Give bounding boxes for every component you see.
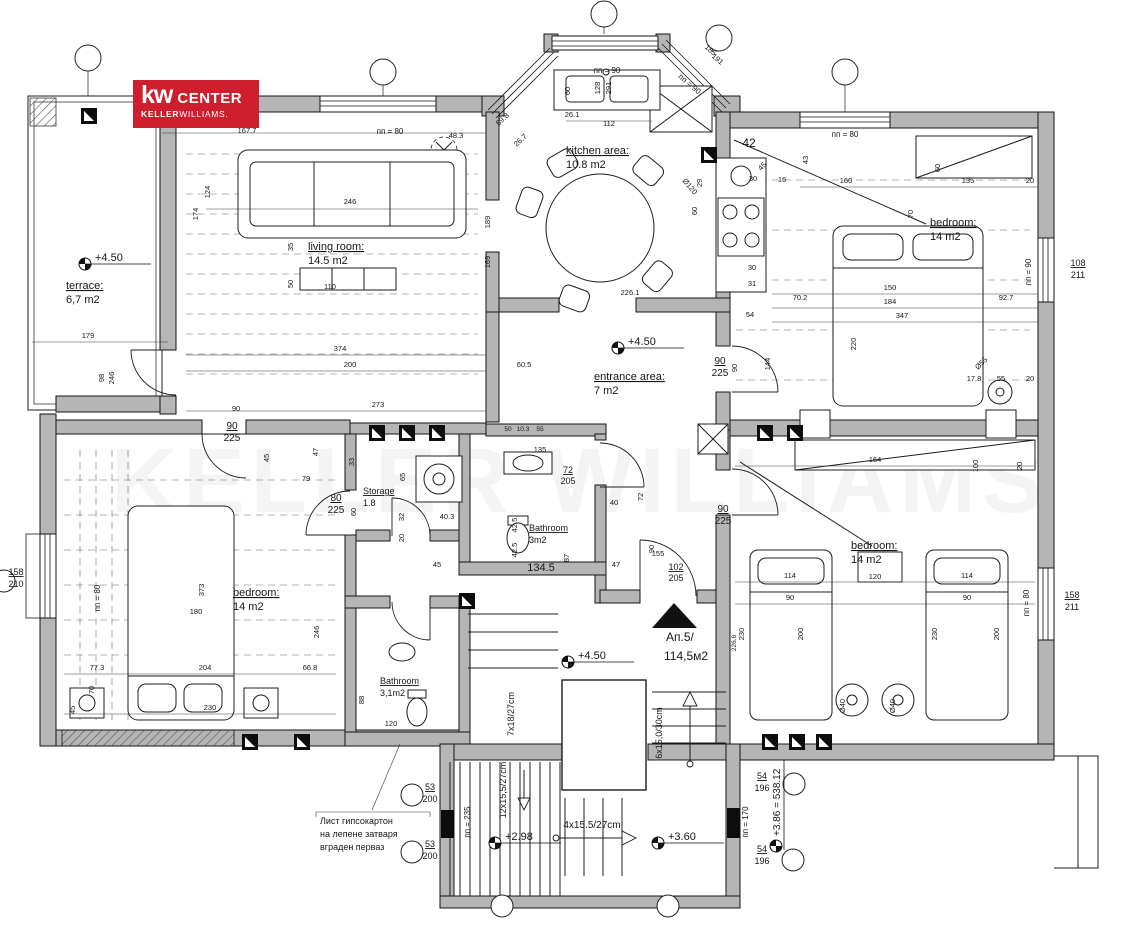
grid-bubble (75, 45, 101, 96)
column-marker (242, 734, 258, 750)
kw-logo-center: CENTER (177, 91, 242, 106)
plan-label: 3,1m2 (380, 688, 405, 698)
plan-label: 7 m2 (594, 385, 618, 397)
plan-label: 90 (730, 364, 739, 372)
plan-label: 114,5м2 (664, 649, 708, 663)
plan-label: 374 (334, 344, 347, 353)
plan-label: 1.8 (363, 498, 376, 508)
plan-label: 98 (97, 374, 106, 382)
plan-label: 14.5 m2 (308, 255, 348, 267)
grid-bubble-circle (832, 59, 858, 85)
plan-label: 60 (933, 164, 942, 172)
plan-label: 77.3 (90, 663, 105, 672)
grid-bubble-circle (491, 895, 513, 917)
plan-label: 102 (668, 562, 683, 572)
plan-label: 225 (712, 368, 729, 379)
plan-label: 20 (1026, 374, 1034, 383)
plan-label: 230 (737, 628, 746, 641)
plan-label: пп = 170 (741, 806, 750, 838)
plan-label: 158 (1064, 590, 1079, 600)
plan-label: 20 (1015, 462, 1024, 470)
plan-label: 230 (930, 628, 939, 641)
plan-label: Ø40 (838, 699, 847, 713)
plan-label: 6,7 m2 (66, 294, 100, 306)
plan-label: 70.2 (793, 293, 808, 302)
plan-label: 7x18/27cm (506, 692, 516, 736)
grid-bubble-circle (783, 773, 805, 795)
plan-label: 179 (82, 331, 95, 340)
plan-label: 211 (1071, 270, 1085, 280)
plan-label: 70 (906, 210, 915, 218)
column-marker (787, 425, 803, 441)
plan-label: 26.1 (565, 110, 580, 119)
plan-label: 31 (748, 279, 756, 288)
plan-label: 90 (226, 421, 238, 432)
plan-label: пп = 90 (1024, 258, 1033, 285)
plan-label: bedroom: (233, 587, 279, 599)
plan-label: Лист гипсокартон (320, 816, 393, 826)
elevation-quadrant (770, 840, 776, 846)
plan-label: 225 (224, 433, 241, 444)
plan-label: 200 (796, 628, 805, 641)
plan-label: вграден перваз (320, 842, 384, 852)
elevation-quadrant (658, 843, 664, 849)
floor-plan-drawing: KELLER WILLIAMS (0, 0, 1135, 939)
plan-label: 180 (190, 607, 203, 616)
plan-label: 72 (563, 465, 573, 475)
plan-label: 230 (204, 703, 217, 712)
plan-label: 200 (344, 360, 357, 369)
plan-label: пп = 235 (463, 806, 472, 838)
grid-bubble (401, 784, 423, 806)
plan-label: 60 (690, 207, 699, 215)
plan-label: 10.8 m2 (566, 159, 606, 171)
plan-label: 225 (328, 505, 345, 516)
plan-label: 189 (483, 216, 492, 229)
plan-label: 196 (754, 783, 769, 793)
elevation-value: +2.98 (505, 831, 533, 843)
elevation-value: +4.50 (578, 650, 606, 662)
plan-label: 90 (786, 593, 794, 602)
elevation-marker: +4.50 (562, 650, 634, 668)
apartment-marker-triangle (652, 603, 697, 628)
plan-label: 79 (302, 474, 310, 483)
plan-label: kitchen area: (566, 145, 629, 157)
elevation-quadrant (776, 846, 782, 852)
plan-label: Ап.5/ (666, 630, 695, 644)
plan-label: 150 (884, 283, 897, 292)
grid-bubble-circle (591, 1, 617, 27)
elevation-marker: +3.60 (652, 831, 724, 849)
plan-label: 30 (749, 174, 757, 183)
column-marker (757, 425, 773, 441)
elevation-value: +3.86 = 538.12 (772, 768, 783, 836)
plan-label: 60.5 (517, 360, 532, 369)
plan-label: 200 (992, 628, 1001, 641)
plan-label: 246 (107, 372, 116, 385)
plan-label: 200 (422, 794, 437, 804)
grid-bubble-circle (370, 59, 396, 85)
plan-label: Ø40 (888, 699, 897, 713)
plan-label: 205 (668, 573, 683, 583)
plan-label: на лепене затваря (320, 829, 398, 839)
column-marker (762, 734, 778, 750)
plan-label: bedroom: (930, 217, 976, 229)
plan-label: 14 m2 (233, 601, 264, 613)
kw-logo-kw: kw (141, 83, 172, 108)
furniture (70, 69, 1035, 726)
plan-label: 43 (801, 156, 810, 164)
bedroom-bottom-left-furniture (70, 506, 278, 720)
plan-label: 50 (504, 426, 512, 433)
plan-label: 55 (997, 374, 1005, 383)
elevation-value: +4.50 (95, 252, 123, 264)
plan-label: 60 (349, 508, 358, 516)
plan-label: 128 (593, 82, 602, 95)
plan-label: living room: (308, 241, 364, 253)
plan-label: 20 (397, 534, 406, 542)
plan-label: 87 (562, 554, 571, 562)
plan-label: 205 (560, 476, 575, 486)
plan-label: 114 (784, 571, 796, 580)
grid-bubble-circle (401, 784, 423, 806)
plan-label: 90 (717, 504, 729, 515)
plan-label: пп = 80 (1022, 589, 1031, 616)
column-marker (399, 425, 415, 441)
plan-label: пп = 80 (377, 127, 404, 136)
kw-logo: kw CENTER KELLERWILLIAMS. (133, 80, 259, 128)
column-marker (816, 734, 832, 750)
kw-logo-line2: KELLERWILLIAMS. (141, 109, 251, 119)
plan-label: 90 (963, 593, 971, 602)
plan-label: 226.6 (731, 634, 738, 651)
column-marker (81, 108, 97, 124)
floor-plan-page: kw CENTER KELLERWILLIAMS. KELLER WILLIAM… (0, 0, 1135, 939)
plan-label: 120 (869, 572, 882, 581)
plan-label: 70 (87, 686, 96, 694)
plan-label: 26.7 (512, 132, 529, 148)
plan-label: 54 (757, 844, 767, 854)
plan-label: 124 (203, 186, 212, 199)
plan-label: 42.5 (510, 543, 519, 558)
plan-label: bedroom: (851, 540, 897, 552)
plan-label: 184 (884, 297, 897, 306)
plan-label: 158 (8, 567, 23, 577)
elevation-quadrant (85, 264, 91, 270)
plan-label: 54 (746, 310, 754, 319)
plan-label: 92.7 (999, 293, 1014, 302)
grid-bubble-circle (75, 45, 101, 71)
plan-label: пп = 80 (832, 130, 859, 139)
plan-label: 45 (433, 560, 441, 569)
plan-label: 72 (636, 493, 645, 501)
plan-label: 45 (68, 706, 77, 714)
grid-bubble-circle (401, 841, 423, 863)
kw-logo-williams: WILLIAMS. (179, 109, 228, 119)
plan-label: 200 (422, 851, 437, 861)
plan-label: 16 (778, 175, 786, 184)
plan-label: 169 (483, 256, 492, 269)
plan-label: 291 (604, 82, 613, 95)
plan-label: 32 (397, 513, 406, 521)
plan-label: 110 (324, 282, 336, 291)
plan-label: 42.5 (510, 518, 519, 533)
plan-label: 196 (754, 856, 769, 866)
kitchen-table-and-chairs (514, 147, 674, 314)
elevation-value: +3.60 (668, 831, 696, 843)
elevation-quadrant (79, 258, 85, 264)
plan-label: 135 (962, 176, 975, 185)
plan-label: 6x15,0/30cm (654, 707, 664, 759)
plan-label: 3m2 (529, 535, 547, 545)
plan-label: 47 (612, 560, 620, 569)
elevation-quadrant (652, 837, 658, 843)
plan-label: 42 (742, 136, 756, 150)
plan-label: 220 (849, 338, 858, 351)
plan-label: 210 (8, 579, 23, 589)
grid-bubble (491, 895, 513, 917)
left-annex (26, 534, 40, 618)
plan-label: 204 (199, 663, 212, 672)
plan-label: 33 (347, 458, 356, 466)
plan-label: 48.3 (449, 131, 464, 140)
plan-label: 112 (603, 119, 615, 128)
grid-bubble (401, 841, 423, 863)
plan-label: Storage (363, 486, 395, 496)
plan-label: 55 (536, 426, 544, 433)
plan-label: 134.5 (527, 562, 555, 574)
column-marker (789, 734, 805, 750)
plan-label: entrance area: (594, 371, 665, 383)
grid-bubble (783, 773, 805, 795)
plan-label: 100 (971, 460, 980, 473)
plan-label: 114 (961, 571, 973, 580)
plan-label: 80 (330, 493, 342, 504)
grid-bubble (591, 1, 617, 34)
plan-label: 14 m2 (851, 554, 882, 566)
plan-label: 174 (191, 208, 200, 221)
kw-logo-keller: KELLER (141, 109, 179, 119)
kw-logo-line1: kw CENTER (141, 83, 251, 108)
plan-label: 144 (763, 358, 772, 371)
bottom-right-annex (1054, 756, 1098, 868)
plan-label: 10.3 (517, 426, 530, 433)
plan-label: 54 (757, 771, 767, 781)
plan-label: 40.3 (440, 512, 455, 521)
grid-bubble (782, 849, 804, 871)
column-marker (459, 593, 475, 609)
plan-label: 30 (748, 263, 756, 272)
living-room-sofa (238, 150, 466, 290)
plan-label: 373 (197, 584, 206, 597)
elevation-value: +4.50 (628, 336, 656, 348)
plan-label: 14 m2 (930, 231, 961, 243)
column-marker (429, 425, 445, 441)
plan-label: 50 (286, 280, 295, 288)
storage-washer (416, 456, 462, 502)
elevation-marker: +3.86 = 538.12 (770, 760, 784, 852)
plan-label: 108 (1070, 258, 1085, 268)
plan-label: 211 (1065, 602, 1079, 612)
plan-label: 45 (262, 454, 271, 462)
column-marker (701, 147, 717, 163)
plan-label: 47 (311, 448, 320, 456)
plan-label: 35 (286, 243, 295, 251)
plan-label: 273 (372, 400, 385, 409)
plan-label: 347 (896, 311, 909, 320)
plan-label: 155 (652, 549, 665, 558)
elevation-quadrant (612, 342, 618, 348)
grid-bubble (832, 59, 858, 112)
elevation-quadrant (618, 348, 624, 354)
plan-label: 66.8 (303, 663, 318, 672)
plan-label: 20 (1026, 176, 1034, 185)
plan-label: 40 (610, 498, 618, 507)
plan-label: 65 (398, 473, 407, 481)
column-marker (294, 734, 310, 750)
plan-label: 90 (714, 356, 726, 367)
grid-bubble-circle (657, 895, 679, 917)
plan-label: 90 (232, 404, 240, 413)
plan-label: 246 (312, 626, 321, 639)
plan-label: 53 (425, 782, 435, 792)
plan-label: Bathroom (529, 523, 568, 533)
plan-label: 60 (563, 87, 572, 95)
plan-label: пп = 80 (93, 584, 102, 611)
grid-bubble (370, 59, 396, 96)
elevation-quadrant (562, 656, 568, 662)
plan-label: 160 (840, 176, 853, 185)
plan-label: 4x15.5/27cm (563, 820, 620, 831)
plan-label: 88 (357, 696, 366, 704)
plan-label: 225 (715, 516, 732, 527)
elevation-quadrant (568, 662, 574, 668)
plan-label: 12x15,5/27cm (498, 762, 508, 819)
plan-label: 17.8 (967, 374, 982, 383)
grid-bubble-circle (782, 849, 804, 871)
plan-label: 246 (344, 197, 357, 206)
plan-label: 164 (869, 455, 882, 464)
plan-label: terrace: (66, 280, 103, 292)
plan-label: пп = 90 (594, 66, 621, 75)
plan-label: 135 (534, 445, 547, 454)
elevation-marker: +4.50 (79, 252, 151, 270)
plan-label: 120 (385, 719, 398, 728)
column-marker (369, 425, 385, 441)
plan-label: 226.1 (621, 288, 640, 297)
plan-label: 29 (695, 179, 704, 187)
bedroom-top-right-furniture (800, 136, 1032, 438)
grid-bubble (657, 895, 679, 917)
elevation-marker: +4.50 (612, 336, 684, 354)
plan-label: Bathroom (380, 676, 419, 686)
plan-label: 53 (425, 839, 435, 849)
